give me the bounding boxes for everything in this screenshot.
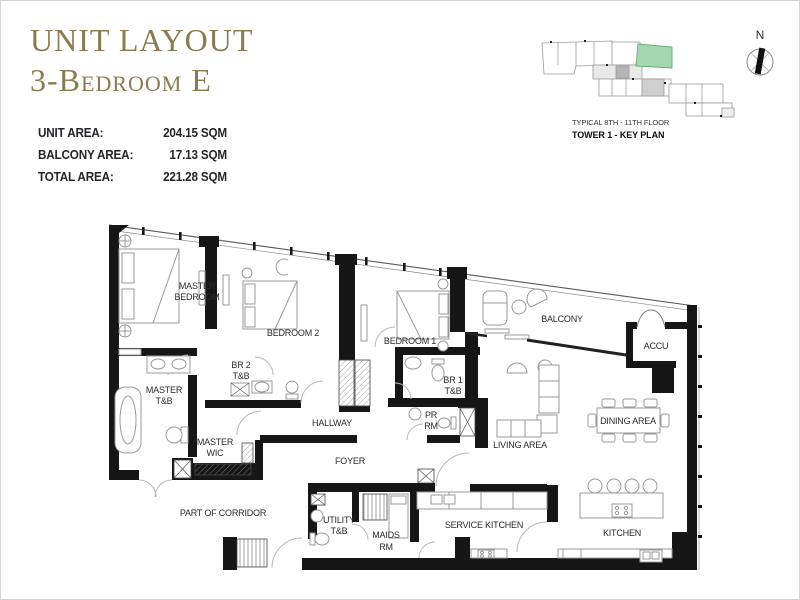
room-label-balcony: BALCONY [541, 314, 583, 324]
room-label-br2-tb: BR 2 [231, 360, 250, 370]
title-line2: 3-Bedroom E [30, 60, 253, 100]
room-label-br2-tb: T&B [233, 371, 250, 381]
room-label-maids-rm: MAIDS [372, 530, 400, 540]
room-label-pr-rm: RM [424, 421, 438, 431]
room-label-bedroom-1: BEDROOM 1 [384, 336, 436, 346]
page-title: UNIT LAYOUT 3-Bedroom E [30, 20, 253, 100]
room-label-part-of-corridor: PART OF CORRIDOR [180, 508, 267, 518]
north-label: N [756, 28, 765, 42]
key-plan-caption: TYPICAL 8TH - 11TH FLOOR TOWER 1 - KEY P… [572, 117, 669, 141]
room-label-pr-rm: PR [425, 410, 438, 420]
area-row-total: TOTAL AREA: 221.28 SQM [38, 166, 227, 188]
key-plan-floor-note: TYPICAL 8TH - 11TH FLOOR [572, 117, 669, 129]
area-label: UNIT AREA: [38, 122, 144, 144]
room-label-bedroom-2: BEDROOM 2 [267, 328, 319, 338]
room-label-foyer: FOYER [335, 456, 366, 466]
north-compass-icon: N [735, 14, 787, 92]
room-label-master-bedroom: BEDROOM [174, 292, 219, 302]
area-row-balcony: BALCONY AREA: 17.13 SQM [38, 144, 227, 166]
floor-plan: MASTER BEDROOM BEDROOM 2 BEDROOM 1 BALCO… [95, 215, 720, 580]
room-label-dining-area: DINING AREA [600, 416, 656, 426]
key-plan-title: TOWER 1 - KEY PLAN [572, 129, 669, 141]
room-label-utility-tb: T&B [331, 526, 348, 536]
room-label-hallway: HALLWAY [312, 418, 352, 428]
room-label-living-area: LIVING AREA [493, 440, 547, 450]
room-label-accu: ACCU [644, 341, 669, 351]
room-label-master-bedroom: MASTER [179, 281, 216, 291]
room-label-master-wic: MASTER [197, 437, 234, 447]
room-label-kitchen: KITCHEN [603, 528, 641, 538]
area-value: 221.28 SQM [144, 166, 227, 188]
room-label-master-wic: WIC [207, 448, 225, 458]
key-plan [536, 16, 740, 118]
area-value: 204.15 SQM [144, 122, 227, 144]
room-label-maids-rm: RM [379, 542, 393, 552]
room-label-master-tb: MASTER [146, 385, 183, 395]
room-label-utility-tb: UTILITY [323, 515, 355, 525]
room-label-service-kitchen: SERVICE KITCHEN [445, 520, 523, 530]
area-label: TOTAL AREA: [38, 166, 144, 188]
room-label-br1-tb: BR 1 [443, 375, 462, 385]
area-row-unit: UNIT AREA: 204.15 SQM [38, 122, 227, 144]
area-table: UNIT AREA: 204.15 SQM BALCONY AREA: 17.1… [38, 122, 227, 188]
area-value: 17.13 SQM [144, 144, 227, 166]
area-label: BALCONY AREA: [38, 144, 144, 166]
title-line1: UNIT LAYOUT [30, 20, 253, 60]
room-label-br1-tb: T&B [445, 386, 462, 396]
room-label-master-tb: T&B [156, 396, 173, 406]
key-plan-highlighted-unit [636, 44, 672, 68]
